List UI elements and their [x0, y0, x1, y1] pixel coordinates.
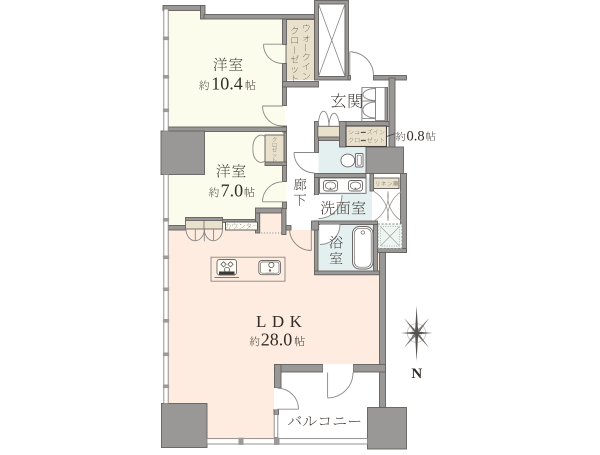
svg-text:LDK: LDK — [256, 312, 307, 331]
svg-text:10.4: 10.4 — [211, 74, 243, 94]
svg-text:7.0: 7.0 — [221, 181, 244, 201]
svg-text:28.0: 28.0 — [261, 330, 293, 350]
svg-text:N: N — [411, 366, 422, 382]
svg-text:0.8: 0.8 — [407, 129, 425, 145]
